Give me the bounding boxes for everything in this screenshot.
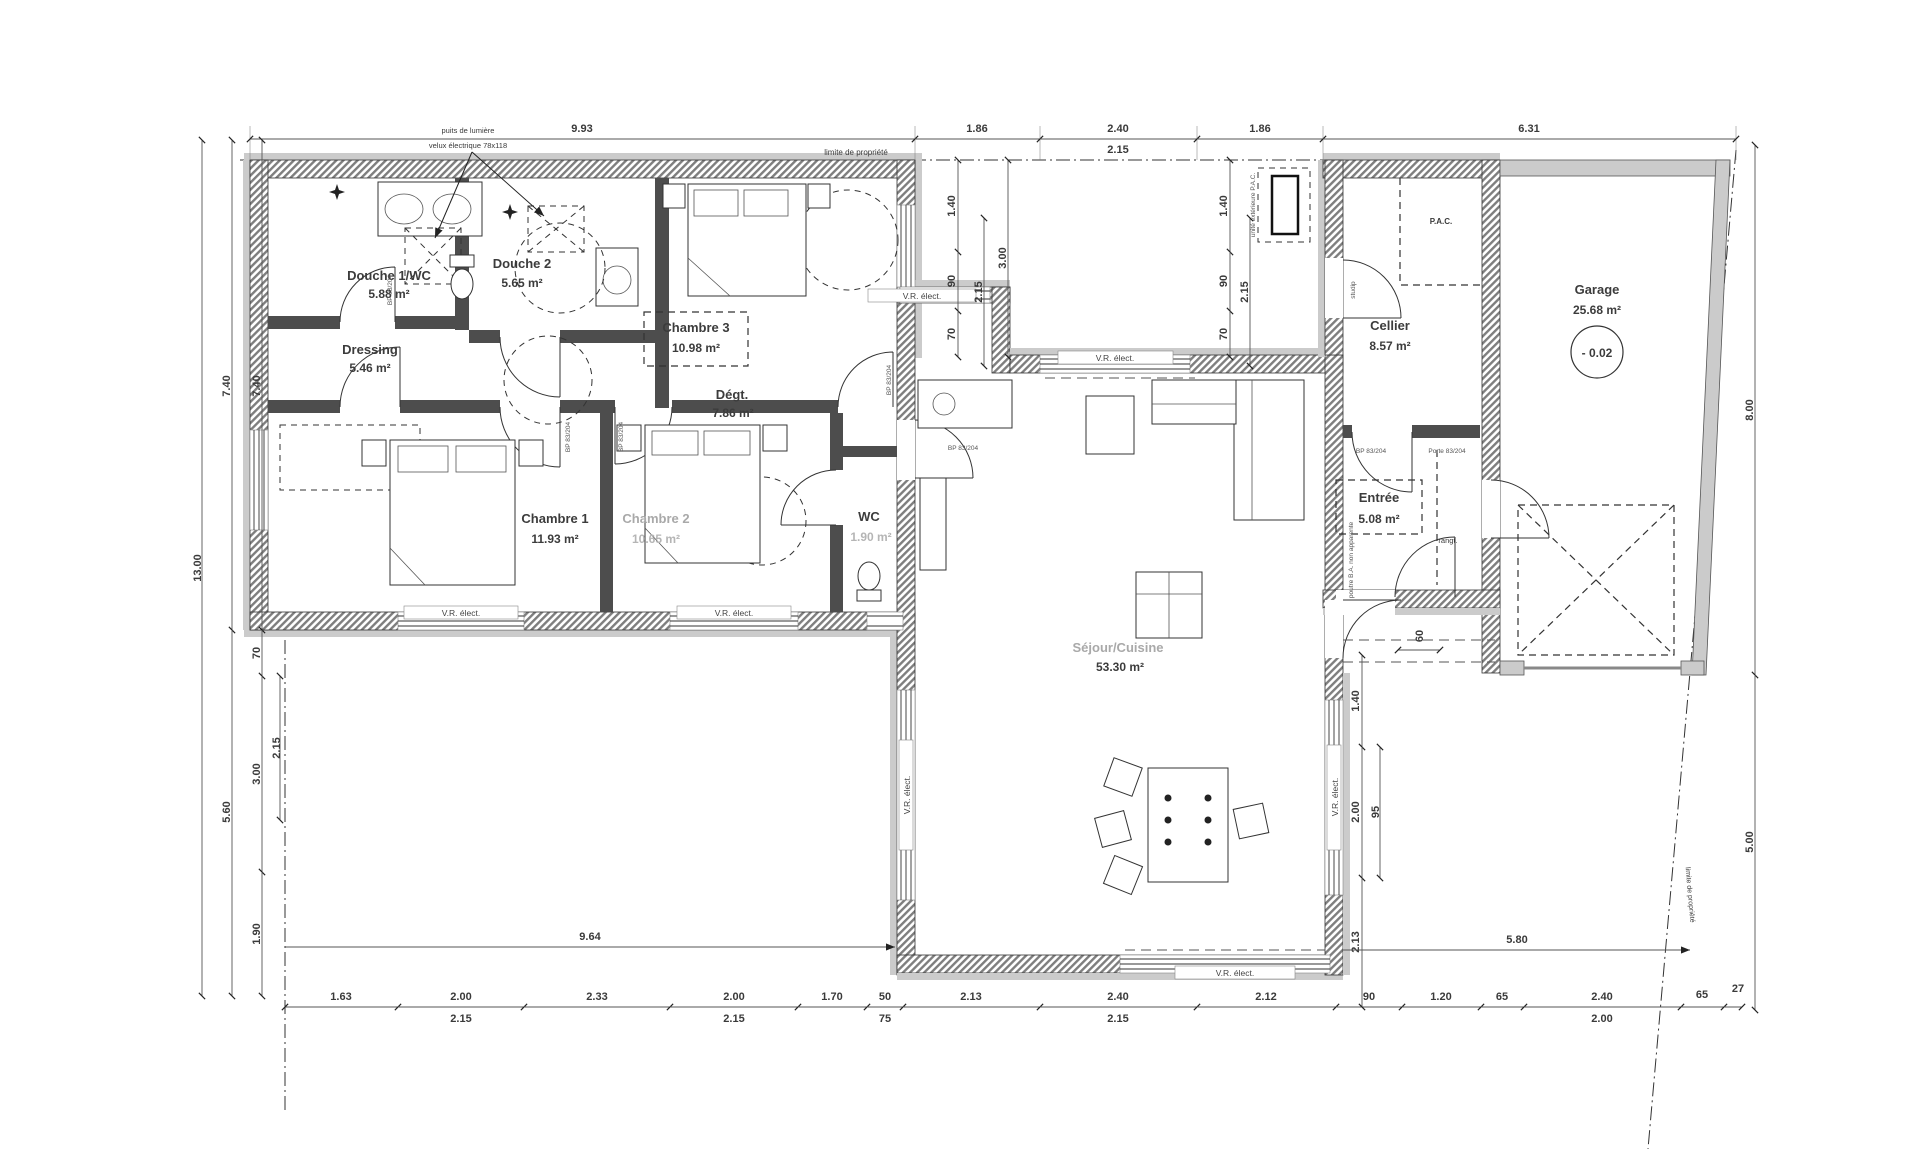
dim-label: 90 <box>946 275 958 287</box>
door-ref: BP 83/204 <box>1356 448 1387 455</box>
window-sejour-west: V.R. élect. <box>897 690 915 900</box>
dim-patio-right: 1.40 90 70 2.15 <box>1218 160 1251 366</box>
bed-chambre1 <box>362 440 543 585</box>
dim-label: 2.40 <box>1107 123 1128 135</box>
limite-label-top: limite de propriété <box>824 148 888 157</box>
dim-label: 1.86 <box>966 123 987 135</box>
dim-label: 1.40 <box>946 195 958 216</box>
room-area-entree: 5.08 m² <box>1358 512 1399 526</box>
door-entree-principale <box>1395 537 1455 597</box>
room-label-garage: Garage <box>1575 282 1620 297</box>
dim-label: 60 <box>1414 630 1426 642</box>
pac-closet <box>1400 178 1482 285</box>
vr-label: V.R. élect. <box>1216 968 1254 978</box>
wall-garage-north <box>1500 160 1730 176</box>
kitchen-island <box>1136 572 1202 638</box>
room-label-degagement: Dégt. <box>716 387 749 402</box>
dim-label: 1.86 <box>1249 123 1270 135</box>
floor-plan-page: V.R. élect. V.R. élect. V.R. <box>0 0 1920 1149</box>
window-sejour-north: V.R. élect. <box>1040 351 1195 378</box>
dim-label: 65 <box>1496 991 1508 1003</box>
room-label-chambre3: Chambre 3 <box>662 320 729 335</box>
vr-label: V.R. élect. <box>903 291 941 301</box>
dim-label: 2.40 <box>1107 991 1128 1003</box>
dim-label: 2.12 <box>1255 991 1276 1003</box>
dim-label: 70 <box>1218 328 1230 340</box>
room-area-douche2: 5.65 m² <box>501 276 542 290</box>
room-label-dressing: Dressing <box>342 342 398 357</box>
dim-label: 6.31 <box>1518 123 1539 135</box>
dim-label: 70 <box>251 647 263 659</box>
room-label-sejour: Séjour/Cuisine <box>1072 640 1163 655</box>
dim-label: 2.15 <box>1107 1013 1128 1025</box>
vr-label: V.R. élect. <box>902 776 912 814</box>
room-label-wc: WC <box>858 509 880 524</box>
door-ref: BP 83/204 <box>387 274 394 305</box>
turning-circle <box>504 336 592 424</box>
dim-label: 65 <box>1696 989 1708 1001</box>
dim-label: 2.00 <box>1350 801 1362 822</box>
dim-label: 2.15 <box>1239 281 1251 302</box>
light-symbol <box>329 184 345 200</box>
coffee-table <box>1086 396 1134 454</box>
poutre-label: poutre B.A. non apparente <box>1348 521 1355 598</box>
dim-label: 1.40 <box>1350 690 1362 711</box>
dim-label: 1.20 <box>1430 991 1451 1003</box>
dim-mid: 9.64 5.80 <box>285 931 1690 950</box>
dim-label: 7.40 <box>221 375 233 396</box>
dim-label: 2.15 <box>271 737 283 758</box>
room-area-degagement: 7.86 m² <box>712 406 753 420</box>
room-area-garage: 25.68 m² <box>1573 303 1621 317</box>
room-area-chambre2: 10.65 m² <box>632 532 680 546</box>
wall-garage-south-a <box>1500 661 1524 675</box>
room-area-chambre3: 10.98 m² <box>672 341 720 355</box>
dim-label: 50 <box>879 991 891 1003</box>
garage-reserve <box>1518 505 1674 655</box>
dim-label: 27 <box>1732 983 1744 995</box>
door-cellier-entree <box>1352 432 1412 492</box>
room-area-wc: 1.90 m² <box>850 530 891 544</box>
dim-label: 2.15 <box>1107 144 1128 156</box>
door-ref: BP 83/204 <box>886 364 893 395</box>
vr-label: V.R. élect. <box>1096 353 1134 363</box>
room-label-pac: P.A.C. <box>1430 217 1453 226</box>
dim-label: 2.33 <box>586 991 607 1003</box>
dim-label: 2.13 <box>1350 931 1362 952</box>
door-douche2 <box>500 337 560 397</box>
room-label-chambre1: Chambre 1 <box>521 511 588 526</box>
dim-label: 2.15 <box>723 1013 744 1025</box>
sofa <box>1152 380 1304 520</box>
window-chambre1: V.R. élect. <box>398 606 524 630</box>
window-wc <box>867 612 903 630</box>
room-label-cellier: Cellier <box>1370 318 1410 333</box>
wall-garage-east <box>1692 160 1730 675</box>
kitchen-counter <box>918 380 1012 428</box>
door-ref: Porte 83/204 <box>1428 448 1466 455</box>
wall-garage-south-b <box>1681 661 1704 675</box>
toilet-douche1 <box>450 255 474 299</box>
window-chambre1-west <box>250 430 268 530</box>
door-chambre3 <box>838 352 893 407</box>
room-label-douche2: Douche 2 <box>493 256 552 271</box>
dim-bottom: 1.63 2.00 2.33 2.00 1.70 50 2.13 2.40 2.… <box>285 983 1744 1025</box>
dim-label: 13.00 <box>192 554 204 582</box>
dim-label: 2.15 <box>450 1013 471 1025</box>
toilet-wc <box>857 562 881 601</box>
window-chambre3-east <box>897 205 915 287</box>
window-chambre2: V.R. élect. <box>670 606 798 630</box>
dim-label: 9.93 <box>571 123 592 135</box>
dim-label: 1.63 <box>330 991 351 1003</box>
dim-label: 5.60 <box>221 801 233 822</box>
dim-label: 1.70 <box>821 991 842 1003</box>
fixtures: unité extérieure P.A.C. <box>280 152 1674 895</box>
door-ref: BP 83/204 <box>565 421 572 452</box>
bed-chambre3 <box>663 184 830 296</box>
dim-label: 95 <box>1370 806 1382 818</box>
dim-label: 7.40 <box>251 375 263 396</box>
wall-north <box>250 160 915 178</box>
door-ref: BP 83/204 <box>618 421 625 452</box>
pac-exterior-unit: unité extérieure P.A.C. <box>1250 168 1310 242</box>
velux-box-2 <box>528 206 584 252</box>
tv-unit <box>920 478 946 570</box>
garage-level: - 0.02 <box>1582 346 1613 360</box>
dim-label: 3.00 <box>997 247 1009 268</box>
vr-label: V.R. élect. <box>1330 778 1340 816</box>
dining-set <box>1095 758 1269 895</box>
dim-label: 75 <box>879 1013 891 1025</box>
dim-label: 2.40 <box>1591 991 1612 1003</box>
washer-douche2 <box>596 248 638 306</box>
dim-label: 2.00 <box>723 991 744 1003</box>
dim-label: 70 <box>946 328 958 340</box>
room-label-entree: Entrée <box>1359 490 1399 505</box>
vr-label: V.R. élect. <box>442 608 480 618</box>
door-wc <box>781 470 836 525</box>
velux-label: velux électrique 78x118 <box>429 141 507 150</box>
vr-label: V.R. élect. <box>715 608 753 618</box>
door-ref: BP 83/204 <box>948 445 979 452</box>
door-tag-label: studip <box>1350 281 1357 299</box>
dim-label: 3.00 <box>251 763 263 784</box>
dim-left: 13.00 7.40 7.40 5.60 70 3.00 2.15 1.90 <box>192 140 283 996</box>
dim-label: 1.40 <box>1218 195 1230 216</box>
room-area-dressing: 5.46 m² <box>349 361 390 375</box>
dim-label: 5.00 <box>1744 831 1756 852</box>
dim-label: 9.64 <box>579 931 601 943</box>
rangement-label: rangt. <box>1438 536 1457 545</box>
dim-label: 8.00 <box>1744 399 1756 420</box>
wall-cellier-north <box>1323 160 1500 178</box>
puits-label: puits de lumière <box>442 126 495 135</box>
room-area-chambre1: 11.93 m² <box>531 532 578 546</box>
window-sejour-east: V.R. élect. <box>1325 700 1343 895</box>
pac-exterior-label: unité extérieure P.A.C. <box>1250 173 1257 238</box>
dim-label: 2.13 <box>960 991 981 1003</box>
wall-south-bedrooms <box>250 612 915 630</box>
dim-label: 90 <box>1363 991 1375 1003</box>
room-area-cellier: 8.57 m² <box>1369 339 1410 353</box>
wall-nook-jog <box>992 287 1010 373</box>
dim-label: 1.90 <box>251 923 263 944</box>
dim-label: 2.00 <box>1591 1013 1612 1025</box>
dim-label: 2.00 <box>450 991 471 1003</box>
dim-label: 2.15 <box>973 281 985 302</box>
light-symbol <box>502 204 518 220</box>
window-nook: V.R. élect. <box>868 287 990 303</box>
floor-plan-svg: V.R. élect. V.R. élect. V.R. <box>0 0 1920 1149</box>
wall-cellier-west <box>1325 160 1343 355</box>
dim-label: 5.80 <box>1506 934 1527 946</box>
limite-label-right: limite de propriété <box>1684 867 1696 923</box>
room-area-sejour: 53.30 m² <box>1096 660 1144 674</box>
dim-label: 90 <box>1218 275 1230 287</box>
room-label-chambre2: Chambre 2 <box>622 511 689 526</box>
